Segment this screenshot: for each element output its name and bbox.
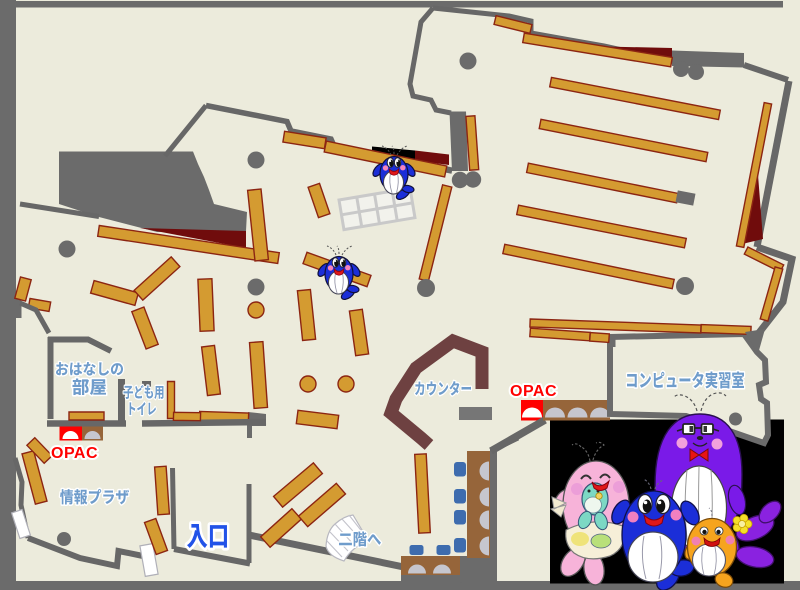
svg-text:OPAC: OPAC [51,445,98,462]
svg-text:OPAC: OPAC [510,383,557,400]
